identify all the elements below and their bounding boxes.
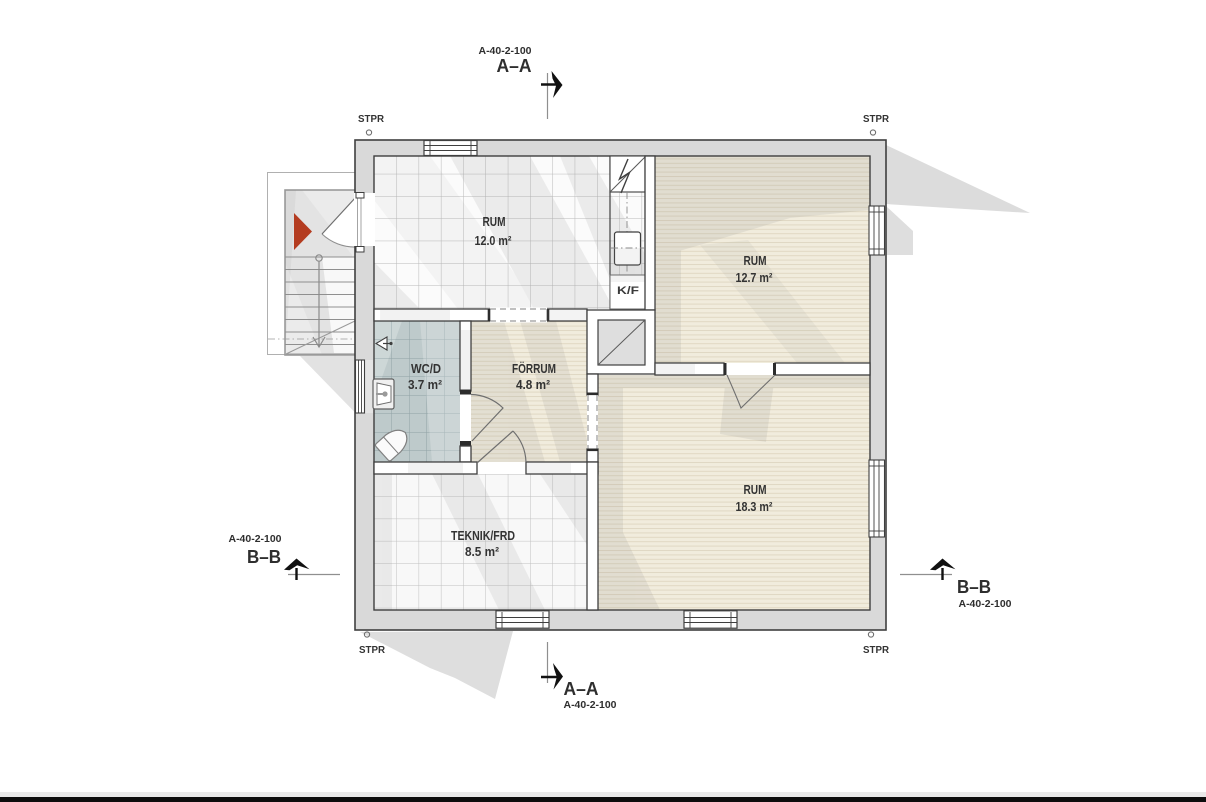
svg-text:STPR: STPR bbox=[863, 113, 889, 125]
svg-text:8.5 m²: 8.5 m² bbox=[465, 545, 499, 559]
svg-text:18.3 m²: 18.3 m² bbox=[736, 500, 773, 514]
svg-text:12.0 m²: 12.0 m² bbox=[475, 234, 512, 248]
svg-text:B–B: B–B bbox=[957, 577, 991, 597]
svg-text:A–A: A–A bbox=[497, 56, 532, 76]
svg-text:STPR: STPR bbox=[863, 644, 889, 656]
svg-text:FÖRRUM: FÖRRUM bbox=[512, 361, 556, 376]
svg-text:STPR: STPR bbox=[358, 113, 384, 125]
svg-text:STPR: STPR bbox=[359, 644, 385, 656]
svg-text:WC/D: WC/D bbox=[411, 362, 441, 376]
svg-text:RUM: RUM bbox=[483, 215, 506, 229]
svg-text:4.8 m²: 4.8 m² bbox=[516, 378, 550, 392]
svg-text:3.7 m²: 3.7 m² bbox=[408, 378, 442, 392]
svg-text:TEKNIK/FRD: TEKNIK/FRD bbox=[451, 529, 515, 543]
svg-text:A-40-2-100: A-40-2-100 bbox=[959, 599, 1012, 610]
svg-text:A–A: A–A bbox=[564, 679, 599, 699]
svg-text:A-40-2-100: A-40-2-100 bbox=[229, 534, 282, 545]
svg-text:B–B: B–B bbox=[247, 547, 281, 567]
svg-text:K/F: K/F bbox=[617, 285, 639, 297]
svg-text:A-40-2-100: A-40-2-100 bbox=[564, 700, 617, 711]
svg-text:RUM: RUM bbox=[744, 254, 767, 268]
svg-text:12.7 m²: 12.7 m² bbox=[736, 271, 773, 285]
svg-text:RUM: RUM bbox=[744, 483, 767, 497]
